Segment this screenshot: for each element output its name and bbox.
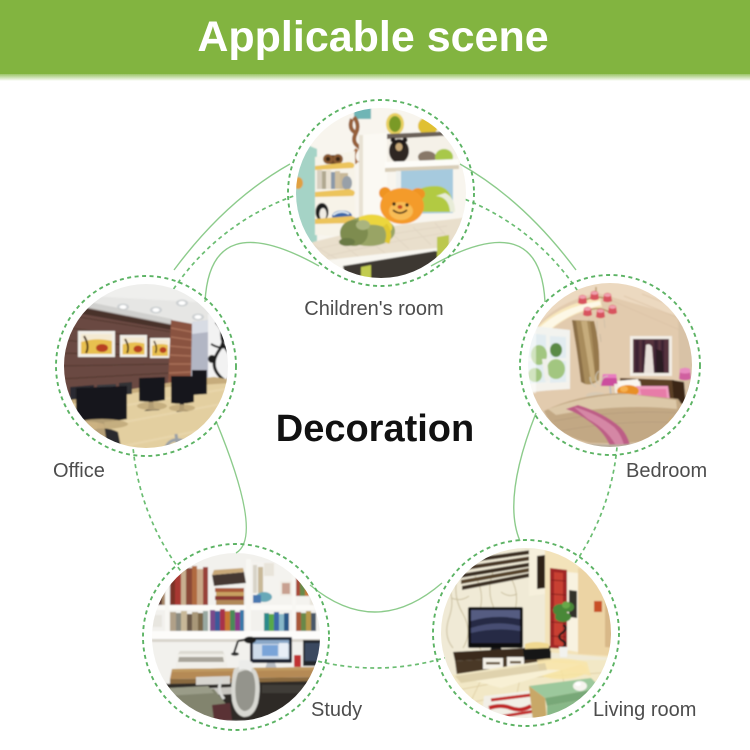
- svg-text:Decoration: Decoration: [276, 408, 474, 450]
- svg-text:Study: Study: [311, 699, 362, 721]
- svg-text:Bedroom: Bedroom: [626, 460, 707, 482]
- svg-text:Applicable scene: Applicable scene: [197, 13, 548, 61]
- svg-text:Office: Office: [53, 460, 105, 482]
- svg-text:Living room: Living room: [593, 699, 696, 721]
- svg-text:Children's room: Children's room: [304, 298, 443, 320]
